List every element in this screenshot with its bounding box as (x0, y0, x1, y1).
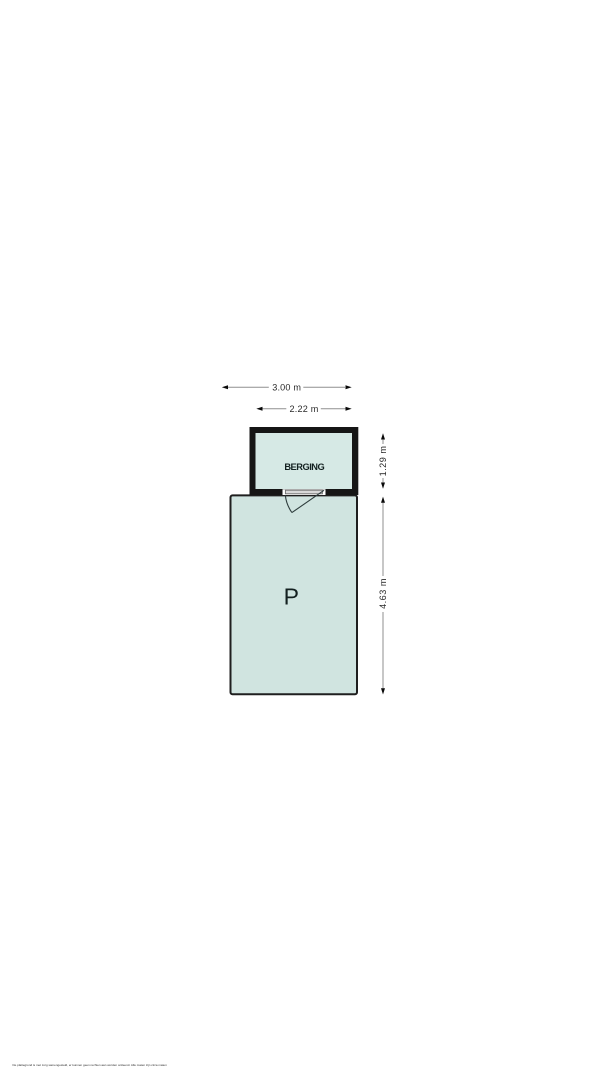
svg-text:De plattegrond is met zorg sam: De plattegrond is met zorg samengesteld,… (13, 1063, 168, 1067)
svg-text:2.22 m: 2.22 m (289, 404, 318, 414)
svg-text:BERGING: BERGING (284, 462, 324, 472)
svg-text:3.00 m: 3.00 m (272, 383, 301, 393)
svg-text:4.63 m: 4.63 m (378, 578, 388, 609)
svg-text:1.29 m: 1.29 m (378, 446, 388, 477)
svg-text:P: P (284, 584, 299, 610)
